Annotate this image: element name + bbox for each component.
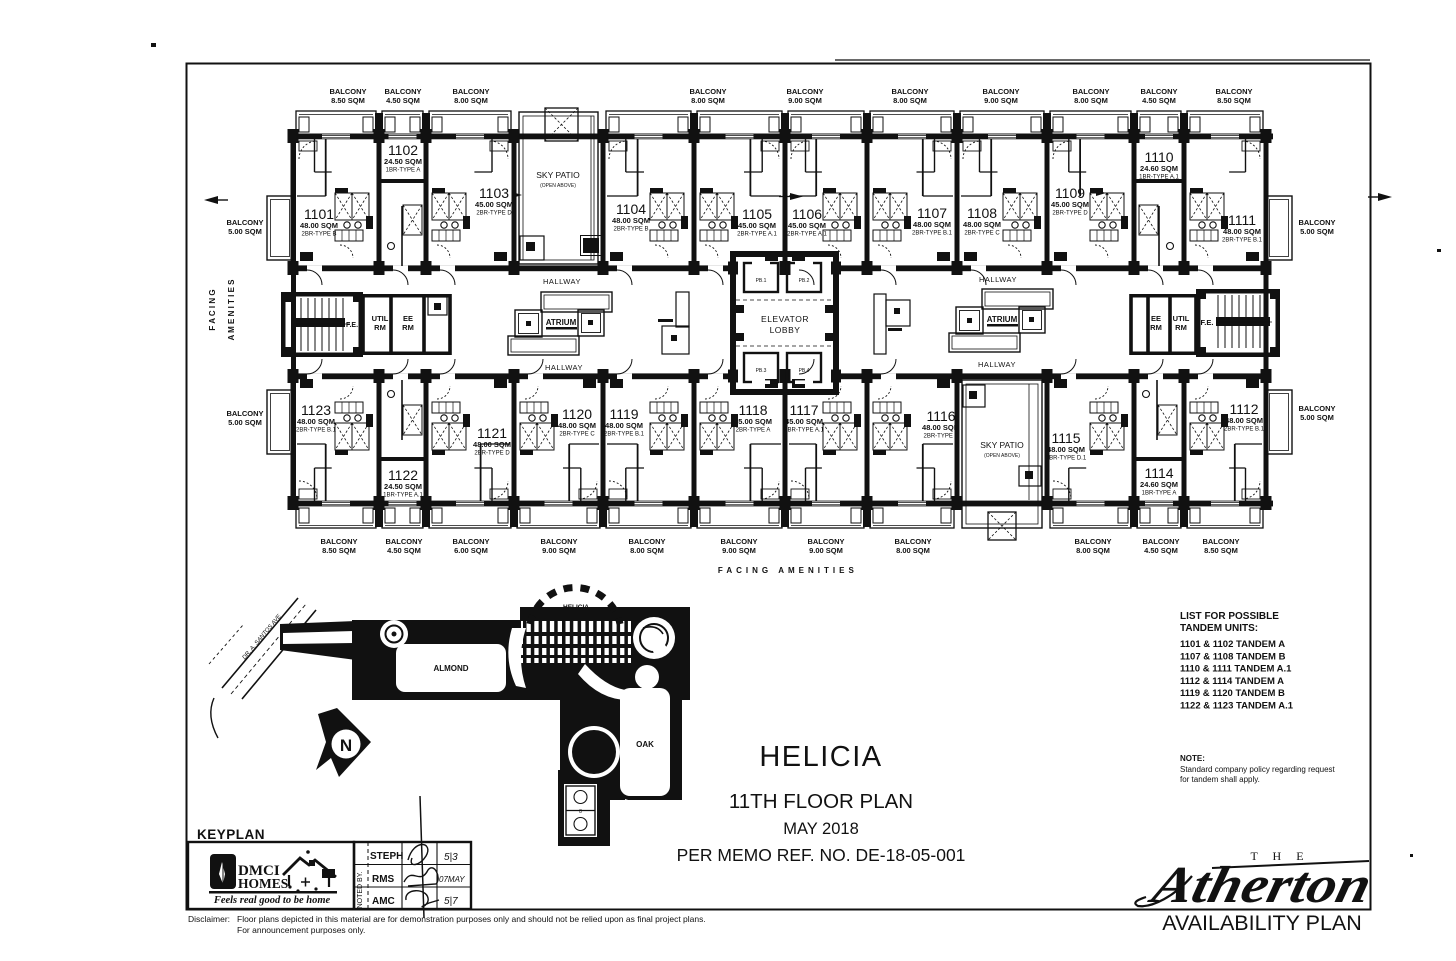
svg-text:1101 & 1102 TANDEM A: 1101 & 1102 TANDEM A bbox=[1180, 639, 1285, 650]
svg-text:48.00 SQM: 48.00 SQM bbox=[297, 417, 335, 426]
svg-text:4.50 SQM: 4.50 SQM bbox=[386, 96, 420, 105]
svg-text:2BR-TYPE D: 2BR-TYPE D bbox=[1052, 211, 1088, 217]
svg-text:1123: 1123 bbox=[301, 402, 331, 418]
svg-text:BALCONY: BALCONY bbox=[1140, 87, 1177, 96]
svg-text:N: N bbox=[340, 736, 352, 755]
svg-text:PB.3: PB.3 bbox=[756, 368, 767, 374]
svg-text:5|3: 5|3 bbox=[444, 852, 458, 863]
svg-text:2BR-TYPE C: 2BR-TYPE C bbox=[559, 432, 595, 438]
svg-text:45.00 SQM: 45.00 SQM bbox=[1051, 200, 1089, 209]
svg-text:HELICIA: HELICIA bbox=[563, 604, 589, 611]
svg-text:8.50 SQM: 8.50 SQM bbox=[1204, 546, 1238, 555]
svg-text:RM: RM bbox=[1150, 323, 1162, 332]
svg-text:1108: 1108 bbox=[967, 205, 997, 221]
svg-text:PB.2: PB.2 bbox=[799, 278, 810, 284]
svg-text:45.00 SQM: 45.00 SQM bbox=[734, 417, 772, 426]
svg-text:HALLWAY: HALLWAY bbox=[979, 275, 1017, 284]
svg-text:AMC: AMC bbox=[372, 896, 395, 907]
svg-text:4.50 SQM: 4.50 SQM bbox=[1144, 546, 1178, 555]
svg-text:BALCONY: BALCONY bbox=[226, 218, 263, 227]
svg-text:2BR-TYPE D: 2BR-TYPE D bbox=[476, 211, 512, 217]
svg-text:6.00 SQM: 6.00 SQM bbox=[454, 546, 488, 555]
svg-text:5.00 SQM: 5.00 SQM bbox=[228, 227, 262, 236]
svg-text:KEYPLAN: KEYPLAN bbox=[197, 827, 265, 842]
svg-text:9.00 SQM: 9.00 SQM bbox=[722, 546, 756, 555]
svg-text:1BR-TYPE A: 1BR-TYPE A bbox=[386, 168, 421, 174]
svg-text:RM: RM bbox=[374, 323, 386, 332]
svg-text:2BR-TYPE B.1: 2BR-TYPE B.1 bbox=[604, 432, 645, 438]
svg-text:24.60 SQM: 24.60 SQM bbox=[1140, 480, 1178, 489]
svg-text:07MAY: 07MAY bbox=[439, 875, 465, 884]
svg-text:F A C I N G: F A C I N G bbox=[208, 289, 217, 330]
svg-text:For announcement purposes only: For announcement purposes only. bbox=[237, 925, 365, 935]
svg-text:ATRIUM: ATRIUM bbox=[987, 315, 1018, 324]
svg-text:RMS: RMS bbox=[372, 874, 395, 885]
svg-text:BALCONY: BALCONY bbox=[1142, 537, 1179, 546]
svg-text:RM: RM bbox=[402, 323, 414, 332]
svg-text:LIST FOR POSSIBLE: LIST FOR POSSIBLE bbox=[1180, 611, 1279, 622]
svg-text:HALLWAY: HALLWAY bbox=[545, 363, 583, 372]
svg-text:8.00 SQM: 8.00 SQM bbox=[1074, 96, 1108, 105]
svg-text:1116: 1116 bbox=[926, 408, 955, 424]
svg-text:5.00 SQM: 5.00 SQM bbox=[1300, 227, 1334, 236]
svg-text:BALCONY: BALCONY bbox=[1298, 404, 1335, 413]
svg-text:(OPEN ABOVE): (OPEN ABOVE) bbox=[984, 453, 1020, 459]
svg-text:9.00 SQM: 9.00 SQM bbox=[984, 96, 1018, 105]
svg-text:2BR-TYPE C: 2BR-TYPE C bbox=[964, 231, 1000, 237]
svg-text:2BR-TYPE B.1: 2BR-TYPE B.1 bbox=[1222, 238, 1263, 244]
svg-text:8.00 SQM: 8.00 SQM bbox=[454, 96, 488, 105]
svg-text:HALLWAY: HALLWAY bbox=[543, 277, 581, 286]
svg-text:5.00 SQM: 5.00 SQM bbox=[228, 418, 262, 427]
svg-text:8.00 SQM: 8.00 SQM bbox=[1076, 546, 1110, 555]
svg-text:AVAILABILITY PLAN: AVAILABILITY PLAN bbox=[1162, 911, 1362, 935]
svg-text:2BR-TYPE B: 2BR-TYPE B bbox=[613, 227, 648, 233]
svg-text:24.50 SQM: 24.50 SQM bbox=[384, 482, 422, 491]
svg-text:BALCONY: BALCONY bbox=[807, 537, 844, 546]
svg-text:2BR-TYPE B.1: 2BR-TYPE B.1 bbox=[1224, 427, 1265, 433]
svg-text:BALCONY: BALCONY bbox=[1202, 537, 1239, 546]
svg-text:1110 & 1111 TANDEM A.1: 1110 & 1111 TANDEM A.1 bbox=[1180, 664, 1292, 675]
svg-text:48.00 SQM: 48.00 SQM bbox=[963, 220, 1001, 229]
svg-text:48.00 SQM: 48.00 SQM bbox=[612, 216, 650, 225]
svg-text:1119: 1119 bbox=[609, 406, 638, 422]
svg-text:for tandem shall apply.: for tandem shall apply. bbox=[1180, 775, 1260, 784]
svg-text:1120: 1120 bbox=[562, 406, 592, 422]
svg-text:8.50 SQM: 8.50 SQM bbox=[322, 546, 356, 555]
svg-text:BALCONY: BALCONY bbox=[540, 537, 577, 546]
svg-text:EE: EE bbox=[403, 314, 413, 323]
svg-text:TANDEM UNITS:: TANDEM UNITS: bbox=[1180, 623, 1258, 634]
svg-text:8.00 SQM: 8.00 SQM bbox=[896, 546, 930, 555]
svg-text:1BR-TYPE A.1: 1BR-TYPE A.1 bbox=[383, 493, 423, 499]
svg-text:BALCONY: BALCONY bbox=[786, 87, 823, 96]
svg-text:STEPH: STEPH bbox=[370, 851, 403, 862]
svg-text:BALCONY: BALCONY bbox=[891, 87, 928, 96]
svg-text:1114: 1114 bbox=[1144, 465, 1173, 481]
svg-text:BALCONY: BALCONY bbox=[720, 537, 757, 546]
svg-text:HELICIA: HELICIA bbox=[759, 741, 882, 773]
svg-text:ALMOND: ALMOND bbox=[433, 664, 468, 673]
svg-text:8.00 SQM: 8.00 SQM bbox=[691, 96, 725, 105]
svg-text:9.00 SQM: 9.00 SQM bbox=[788, 96, 822, 105]
svg-text:BALCONY: BALCONY bbox=[1074, 537, 1111, 546]
svg-text:1118: 1118 bbox=[738, 402, 767, 418]
svg-text:PB.4: PB.4 bbox=[799, 368, 810, 374]
svg-text:45.00 SQM: 45.00 SQM bbox=[475, 200, 513, 209]
svg-text:OAK: OAK bbox=[636, 740, 654, 749]
svg-text:BALCONY: BALCONY bbox=[689, 87, 726, 96]
svg-text:UTIL: UTIL bbox=[372, 314, 389, 323]
svg-text:Disclaimer:: Disclaimer: bbox=[188, 914, 230, 924]
svg-text:BALCONY: BALCONY bbox=[226, 409, 263, 418]
svg-text:SKY PATIO: SKY PATIO bbox=[980, 440, 1024, 450]
svg-text:48.00 SQM: 48.00 SQM bbox=[558, 421, 596, 430]
svg-text:2BR-TYPE A.1: 2BR-TYPE A.1 bbox=[787, 232, 827, 238]
svg-text:Feels real good to be home: Feels real good to be home bbox=[213, 895, 331, 906]
svg-text:1106: 1106 bbox=[792, 206, 822, 222]
svg-text:5|7: 5|7 bbox=[444, 896, 458, 907]
svg-text:BALCONY: BALCONY bbox=[320, 537, 357, 546]
svg-text:11TH FLOOR PLAN: 11TH FLOOR PLAN bbox=[729, 790, 913, 813]
svg-text:45.00 SQM: 45.00 SQM bbox=[738, 221, 776, 230]
svg-text:2BR-TYPE D.1: 2BR-TYPE D.1 bbox=[1046, 456, 1087, 462]
svg-text:1103: 1103 bbox=[479, 185, 509, 201]
svg-text:HALLWAY: HALLWAY bbox=[978, 360, 1016, 369]
svg-text:UTIL: UTIL bbox=[1173, 314, 1190, 323]
svg-text:(OPEN ABOVE): (OPEN ABOVE) bbox=[540, 183, 576, 189]
svg-text:EE: EE bbox=[1151, 314, 1161, 323]
svg-text:1111: 1111 bbox=[1228, 212, 1256, 228]
svg-text:1BR-TYPE A: 1BR-TYPE A bbox=[1142, 491, 1177, 497]
svg-text:8.00 SQM: 8.00 SQM bbox=[630, 546, 664, 555]
svg-text:1112: 1112 bbox=[1229, 401, 1258, 417]
svg-text:PB.1: PB.1 bbox=[756, 278, 767, 284]
svg-text:2BR-TYPE B.1: 2BR-TYPE B.1 bbox=[296, 428, 337, 434]
svg-text:BALCONY: BALCONY bbox=[1072, 87, 1109, 96]
svg-text:2BR-TYPE A: 2BR-TYPE A bbox=[736, 428, 771, 434]
svg-text:LOBBY: LOBBY bbox=[770, 325, 801, 335]
svg-text:1119 & 1120 TANDEM B: 1119 & 1120 TANDEM B bbox=[1180, 688, 1285, 699]
svg-text:RM: RM bbox=[1175, 323, 1187, 332]
svg-text:2BR-TYPE A.1: 2BR-TYPE A.1 bbox=[737, 232, 777, 238]
svg-text:1107: 1107 bbox=[917, 205, 947, 221]
svg-text:SKY PATIO: SKY PATIO bbox=[536, 170, 580, 180]
svg-text:BALCONY: BALCONY bbox=[1298, 218, 1335, 227]
svg-text:1122: 1122 bbox=[388, 467, 418, 483]
svg-text:48.00 SQM: 48.00 SQM bbox=[922, 423, 960, 432]
svg-text:4.50 SQM: 4.50 SQM bbox=[387, 546, 421, 555]
svg-text:48.00 SQM: 48.00 SQM bbox=[300, 221, 338, 230]
svg-text:1117: 1117 bbox=[789, 402, 818, 418]
svg-text:NOTE:: NOTE: bbox=[1180, 754, 1205, 763]
svg-text:9.00 SQM: 9.00 SQM bbox=[809, 546, 843, 555]
svg-text:FACING: FACING bbox=[718, 566, 772, 575]
svg-text:8: 8 bbox=[579, 809, 582, 815]
svg-text:48.00 SQM: 48.00 SQM bbox=[1223, 227, 1261, 236]
svg-text:8.00 SQM: 8.00 SQM bbox=[893, 96, 927, 105]
svg-text:1102: 1102 bbox=[388, 142, 418, 158]
svg-text:BALCONY: BALCONY bbox=[894, 537, 931, 546]
svg-text:1112 & 1114 TANDEM A: 1112 & 1114 TANDEM A bbox=[1180, 676, 1284, 687]
svg-text:Floor plans depicted in this m: Floor plans depicted in this material ar… bbox=[237, 914, 706, 924]
svg-text:2BR-TYPE B: 2BR-TYPE B bbox=[923, 434, 958, 440]
svg-text:1101: 1101 bbox=[304, 206, 334, 222]
svg-text:F.E.: F.E. bbox=[346, 322, 358, 329]
svg-text:ELEVATOR: ELEVATOR bbox=[761, 314, 809, 324]
svg-text:MAY 2018: MAY 2018 bbox=[783, 820, 859, 838]
svg-text:45.00 SQM: 45.00 SQM bbox=[785, 417, 823, 426]
svg-text:48.00 SQM: 48.00 SQM bbox=[605, 421, 643, 430]
svg-text:BALCONY: BALCONY bbox=[452, 537, 489, 546]
svg-text:24.50 SQM: 24.50 SQM bbox=[384, 157, 422, 166]
svg-text:1122 & 1123 TANDEM A.1: 1122 & 1123 TANDEM A.1 bbox=[1180, 701, 1294, 712]
svg-text:HOMES: HOMES bbox=[238, 876, 288, 891]
svg-text:BALCONY: BALCONY bbox=[329, 87, 366, 96]
svg-text:AMENITIES: AMENITIES bbox=[778, 566, 858, 575]
svg-text:BALCONY: BALCONY bbox=[982, 87, 1019, 96]
svg-text:9.00 SQM: 9.00 SQM bbox=[542, 546, 576, 555]
svg-text:24.60 SQM: 24.60 SQM bbox=[1140, 164, 1178, 173]
svg-text:F.E.: F.E. bbox=[1201, 318, 1214, 327]
svg-text:1110: 1110 bbox=[1144, 149, 1173, 165]
svg-text:BALCONY: BALCONY bbox=[628, 537, 665, 546]
svg-text:ATRIUM: ATRIUM bbox=[546, 318, 577, 327]
svg-text:8.50 SQM: 8.50 SQM bbox=[331, 96, 365, 105]
svg-text:2BR-TYPE B.1: 2BR-TYPE B.1 bbox=[912, 231, 953, 237]
svg-text:BALCONY: BALCONY bbox=[1215, 87, 1252, 96]
svg-text:1107 & 1108 TANDEM B: 1107 & 1108 TANDEM B bbox=[1180, 651, 1286, 662]
svg-text:2BR-TYPE B: 2BR-TYPE B bbox=[301, 232, 336, 238]
svg-text:1121: 1121 bbox=[477, 425, 507, 441]
svg-text:2BR-TYPE A.1: 2BR-TYPE A.1 bbox=[784, 428, 824, 434]
svg-text:45.00 SQM: 45.00 SQM bbox=[788, 221, 826, 230]
svg-text:BALCONY: BALCONY bbox=[385, 537, 422, 546]
svg-text:48.00 SQM: 48.00 SQM bbox=[913, 220, 951, 229]
svg-text:1105: 1105 bbox=[742, 206, 772, 222]
svg-text:1104: 1104 bbox=[616, 201, 646, 217]
svg-text:48.00 SQM: 48.00 SQM bbox=[1047, 445, 1085, 454]
svg-text:BALCONY: BALCONY bbox=[384, 87, 421, 96]
svg-text:4.50 SQM: 4.50 SQM bbox=[1142, 96, 1176, 105]
svg-text:NOTED BY.: NOTED BY. bbox=[357, 872, 364, 909]
svg-text:48.00 SQM: 48.00 SQM bbox=[1225, 416, 1263, 425]
svg-text:Standard company policy regard: Standard company policy regarding reques… bbox=[1180, 765, 1336, 774]
svg-text:BALCONY: BALCONY bbox=[452, 87, 489, 96]
svg-text:A M E N I T I E S: A M E N I T I E S bbox=[227, 279, 236, 341]
svg-text:PER MEMO REF. NO. DE-18-05-001: PER MEMO REF. NO. DE-18-05-001 bbox=[677, 845, 966, 865]
svg-text:1115: 1115 bbox=[1051, 430, 1080, 446]
svg-text:5.00 SQM: 5.00 SQM bbox=[1300, 413, 1334, 422]
svg-text:8.50 SQM: 8.50 SQM bbox=[1217, 96, 1251, 105]
